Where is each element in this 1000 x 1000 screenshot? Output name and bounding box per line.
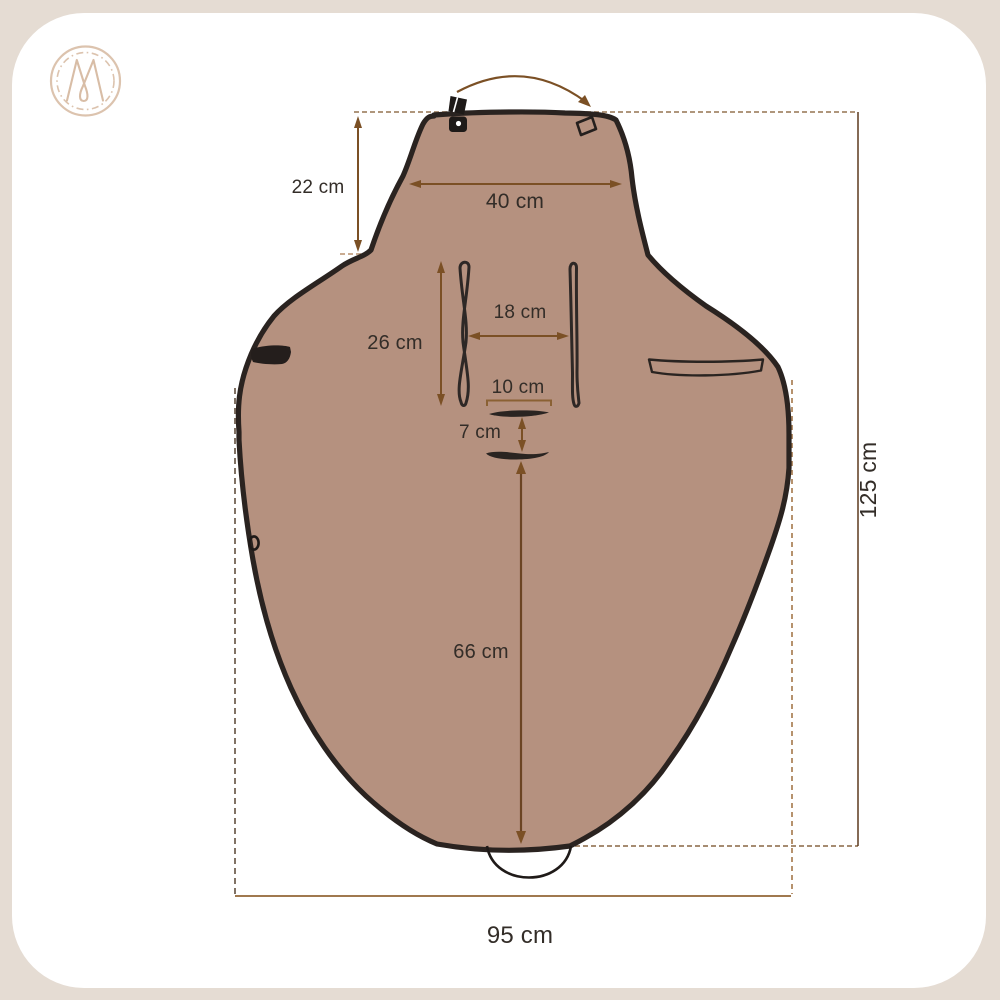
svg-text:10 cm: 10 cm	[492, 377, 545, 398]
svg-text:18 cm: 18 cm	[494, 302, 547, 323]
svg-text:95 cm: 95 cm	[487, 922, 553, 949]
svg-text:26 cm: 26 cm	[367, 332, 422, 354]
svg-text:22 cm: 22 cm	[292, 177, 345, 198]
svg-text:7 cm: 7 cm	[459, 422, 501, 443]
svg-text:66 cm: 66 cm	[453, 641, 508, 663]
svg-text:40 cm: 40 cm	[486, 190, 544, 213]
svg-text:125 cm: 125 cm	[855, 442, 881, 519]
